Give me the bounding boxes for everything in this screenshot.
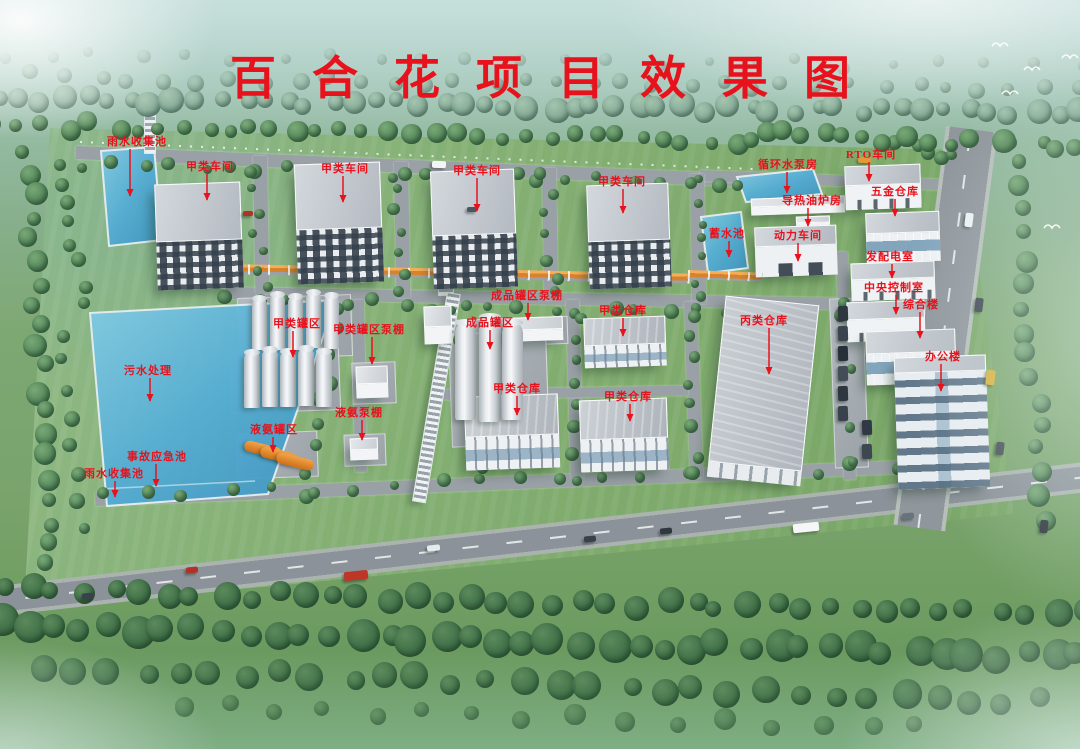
tree xyxy=(27,212,41,226)
tree xyxy=(769,593,789,613)
tree xyxy=(212,620,235,643)
tree xyxy=(1012,154,1027,169)
tree xyxy=(347,671,366,690)
tree xyxy=(734,591,761,618)
tree xyxy=(990,694,1011,715)
tree xyxy=(757,122,778,143)
tree xyxy=(700,628,728,656)
tree xyxy=(1013,273,1034,294)
tree xyxy=(713,681,740,708)
tree xyxy=(997,106,1016,125)
page-title: 百合花项目效果图 xyxy=(0,54,1080,105)
tree xyxy=(855,688,876,709)
tree xyxy=(658,587,684,613)
tree xyxy=(766,629,799,662)
tree xyxy=(887,135,902,150)
tree xyxy=(572,671,601,700)
tree xyxy=(856,106,872,122)
tree xyxy=(14,611,47,644)
tree xyxy=(266,704,282,720)
tree xyxy=(383,625,404,646)
tree xyxy=(1074,598,1080,623)
tree xyxy=(15,145,29,159)
tree xyxy=(459,625,482,648)
tree xyxy=(268,659,291,682)
tree xyxy=(314,701,329,716)
tree xyxy=(982,646,1010,674)
tree xyxy=(638,131,650,143)
tree xyxy=(1016,251,1038,273)
tree xyxy=(140,665,159,684)
tree xyxy=(994,140,1006,152)
tree xyxy=(678,675,702,699)
tree xyxy=(507,591,534,618)
tree xyxy=(789,598,812,621)
tree xyxy=(145,615,173,643)
campus-ground xyxy=(0,0,1080,749)
tree xyxy=(615,712,635,732)
tree xyxy=(484,592,506,614)
tree xyxy=(1008,175,1029,196)
tree xyxy=(236,666,260,690)
tree xyxy=(1038,136,1050,148)
tree xyxy=(1019,368,1037,386)
tree xyxy=(606,125,623,142)
tree xyxy=(432,621,463,652)
tree xyxy=(378,589,403,614)
tree xyxy=(690,593,707,610)
tree xyxy=(928,685,952,709)
tree xyxy=(994,603,1012,621)
tree xyxy=(0,578,14,596)
tree xyxy=(567,125,584,142)
tree xyxy=(893,679,922,708)
tree xyxy=(906,716,921,731)
tree xyxy=(542,595,563,616)
tree xyxy=(931,638,963,670)
tree xyxy=(599,630,631,662)
tree xyxy=(372,662,397,687)
tree xyxy=(400,661,428,689)
tree xyxy=(929,603,947,621)
tree xyxy=(763,720,780,737)
tree xyxy=(772,120,792,140)
tree xyxy=(714,708,736,730)
tree xyxy=(195,661,219,685)
tree xyxy=(23,297,40,314)
tree xyxy=(652,679,679,706)
tree xyxy=(440,675,460,695)
tree xyxy=(1045,599,1073,627)
tree xyxy=(814,716,834,736)
tree xyxy=(547,670,577,700)
tree xyxy=(175,697,195,717)
tree xyxy=(9,119,22,132)
tree xyxy=(122,616,156,650)
tree xyxy=(1036,511,1057,532)
tree xyxy=(1027,484,1050,507)
bird-icon xyxy=(1044,225,1060,228)
tree xyxy=(318,626,340,648)
tree xyxy=(464,706,478,720)
tree xyxy=(865,717,883,735)
tree xyxy=(511,667,539,695)
tree xyxy=(833,127,849,143)
tree xyxy=(1016,224,1031,239)
tree xyxy=(459,584,485,610)
tree xyxy=(992,129,1016,153)
tree xyxy=(791,127,809,145)
tree xyxy=(77,111,97,131)
tree xyxy=(240,119,255,134)
tree xyxy=(1002,135,1017,150)
tree xyxy=(1046,140,1064,158)
tree xyxy=(624,596,649,621)
tree xyxy=(66,619,89,642)
tree xyxy=(222,695,238,711)
tree xyxy=(1032,394,1051,413)
tree xyxy=(32,115,48,131)
tree xyxy=(822,598,839,615)
tree xyxy=(433,592,454,613)
tree xyxy=(96,612,121,637)
tree xyxy=(818,123,836,141)
tree xyxy=(243,591,261,609)
tree xyxy=(1034,417,1051,434)
tree xyxy=(18,227,37,246)
tree xyxy=(876,600,899,623)
tree xyxy=(786,635,808,657)
tree xyxy=(655,640,675,660)
tree xyxy=(949,638,983,672)
tree xyxy=(241,626,262,647)
tree xyxy=(567,632,595,660)
tree xyxy=(324,586,342,604)
tree xyxy=(896,126,917,147)
tree xyxy=(405,582,431,608)
tree xyxy=(177,613,204,640)
tree xyxy=(295,663,323,691)
tree xyxy=(752,676,779,703)
tree xyxy=(819,633,844,658)
tree xyxy=(370,708,386,724)
tree xyxy=(1015,200,1031,216)
tree xyxy=(293,582,319,608)
tree xyxy=(1063,642,1080,664)
tree xyxy=(740,638,763,661)
tree xyxy=(906,636,936,666)
tree xyxy=(1052,106,1069,123)
tree xyxy=(1013,302,1029,318)
tree xyxy=(20,165,41,186)
tree xyxy=(791,686,810,705)
tree xyxy=(1014,324,1035,345)
tree xyxy=(845,630,877,662)
tree xyxy=(573,590,594,611)
tree xyxy=(1032,462,1052,482)
tree xyxy=(59,658,86,685)
tree xyxy=(953,599,972,618)
tree xyxy=(0,603,19,635)
tree xyxy=(1014,342,1034,362)
tree xyxy=(959,129,978,148)
tree xyxy=(855,130,869,144)
project-rendering-poster: 雨水收集池甲类车间甲类车间甲类车间甲类车间循环水泵房RTO车间五金仓库导热油炉房… xyxy=(0,0,1080,749)
tree xyxy=(476,670,494,688)
tree xyxy=(512,711,530,729)
tree xyxy=(705,601,721,617)
tree xyxy=(677,635,706,664)
tree xyxy=(531,623,563,655)
tree xyxy=(347,619,380,652)
tree xyxy=(827,688,847,708)
tree xyxy=(977,103,996,122)
tree xyxy=(483,629,512,658)
tree xyxy=(1043,639,1074,670)
tree xyxy=(670,717,686,733)
tree xyxy=(394,625,426,657)
tree xyxy=(1015,605,1034,624)
tree xyxy=(287,624,309,646)
tree xyxy=(1028,439,1044,455)
tree xyxy=(42,614,65,637)
tree xyxy=(630,635,653,658)
tree xyxy=(331,121,346,136)
tree xyxy=(900,598,920,618)
tree xyxy=(171,663,192,684)
tree xyxy=(1019,641,1039,661)
tree xyxy=(31,655,57,681)
tree xyxy=(853,600,872,619)
tree xyxy=(624,678,642,696)
tree xyxy=(509,631,534,656)
tree xyxy=(1030,687,1050,707)
tree xyxy=(787,105,804,122)
vehicle xyxy=(1039,520,1049,534)
tree xyxy=(414,702,429,717)
tree xyxy=(868,642,891,665)
tree xyxy=(0,116,1,133)
tree xyxy=(564,704,585,725)
tree xyxy=(590,126,606,142)
tree xyxy=(343,584,367,608)
tree xyxy=(25,182,48,205)
tree xyxy=(957,691,981,715)
tree xyxy=(265,622,293,650)
tree xyxy=(594,593,615,614)
bird-icon xyxy=(992,43,1008,46)
tree xyxy=(1066,139,1080,156)
tree xyxy=(92,658,119,685)
tree xyxy=(694,102,715,123)
